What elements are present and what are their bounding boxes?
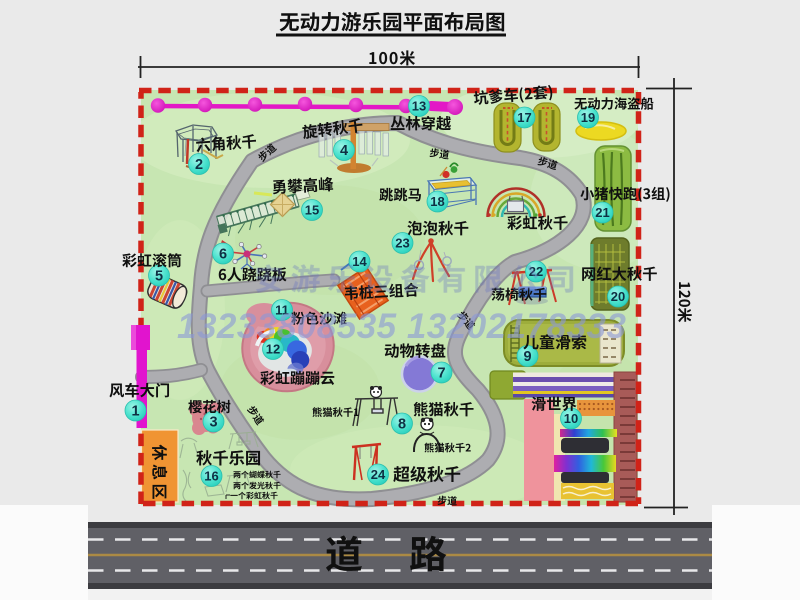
svg-text:5: 5 <box>155 269 163 285</box>
svg-text:16: 16 <box>204 469 218 484</box>
svg-text:15: 15 <box>305 203 319 218</box>
svg-text:21: 21 <box>595 205 609 220</box>
svg-text:13: 13 <box>412 99 426 114</box>
svg-text:10: 10 <box>564 411 578 426</box>
svg-text:20: 20 <box>611 289 625 304</box>
svg-text:24: 24 <box>371 467 386 482</box>
svg-text:14: 14 <box>352 254 367 269</box>
svg-text:23: 23 <box>395 236 409 251</box>
svg-text:4: 4 <box>340 143 348 159</box>
svg-text:3: 3 <box>209 415 217 431</box>
svg-text:7: 7 <box>437 366 445 382</box>
svg-text:6: 6 <box>219 247 227 263</box>
svg-text:1: 1 <box>131 404 139 420</box>
svg-text:19: 19 <box>581 110 595 125</box>
svg-text:17: 17 <box>517 110 531 125</box>
svg-text:2: 2 <box>195 157 203 173</box>
svg-text:9: 9 <box>523 349 531 365</box>
svg-text:18: 18 <box>430 194 444 209</box>
svg-text:13233808535 13202178333: 13233808535 13202178333 <box>177 307 626 346</box>
svg-text:8: 8 <box>398 417 406 433</box>
